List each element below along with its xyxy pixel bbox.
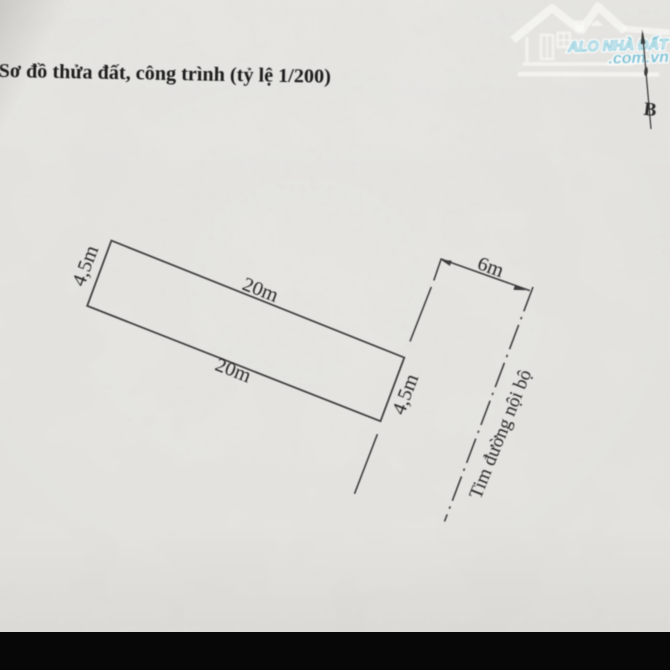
svg-text:.com.vn: .com.vn — [608, 49, 669, 68]
